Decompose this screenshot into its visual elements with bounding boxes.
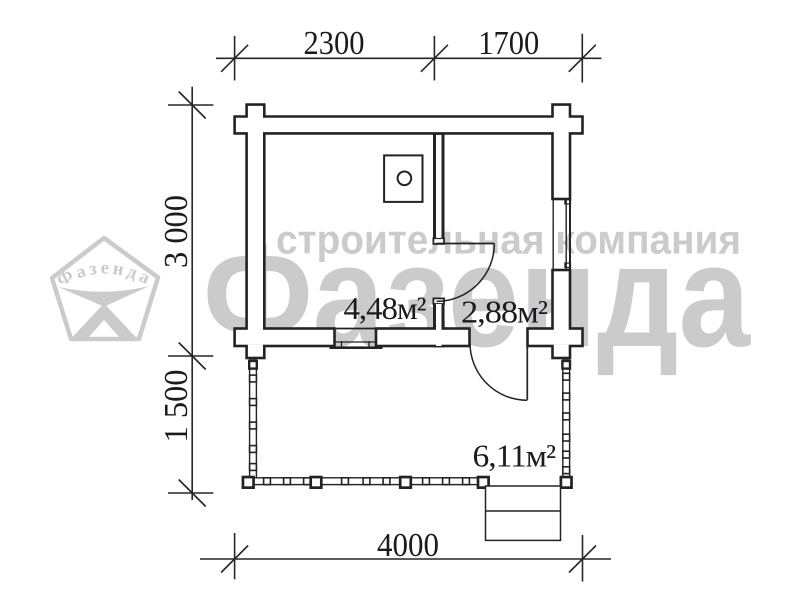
svg-text:3 000: 3 000 [158, 195, 195, 268]
svg-text:4,48м²: 4,48м² [344, 290, 426, 326]
svg-text:6,11м²: 6,11м² [473, 438, 556, 474]
svg-text:1700: 1700 [478, 25, 539, 62]
svg-text:1 500: 1 500 [158, 370, 195, 443]
svg-text:4000: 4000 [377, 527, 439, 564]
svg-text:2,88м²: 2,88м² [461, 294, 547, 330]
svg-text:2300: 2300 [304, 25, 365, 62]
